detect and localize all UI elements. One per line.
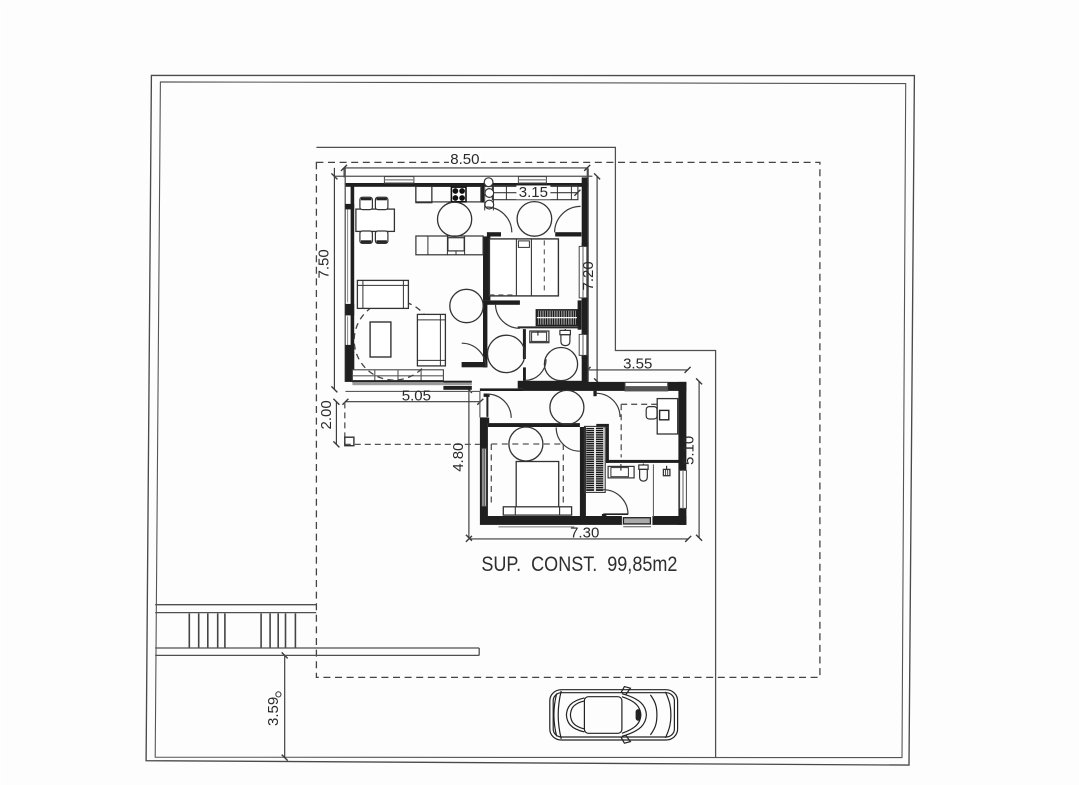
svg-text:7.50: 7.50 bbox=[315, 249, 332, 278]
svg-text:2.00: 2.00 bbox=[318, 400, 335, 429]
svg-text:5.10: 5.10 bbox=[680, 436, 697, 465]
svg-text:3.55: 3.55 bbox=[623, 356, 652, 373]
svg-text:8.50: 8.50 bbox=[450, 151, 479, 168]
svg-text:4.80: 4.80 bbox=[450, 443, 467, 472]
svg-text:7.30: 7.30 bbox=[570, 524, 599, 541]
svg-text:3.15: 3.15 bbox=[519, 184, 548, 201]
svg-text:SUP. CONST. 99,85m2: SUP. CONST. 99,85m2 bbox=[481, 552, 677, 576]
svg-text:7.20: 7.20 bbox=[580, 261, 597, 290]
svg-text:3.59: 3.59 bbox=[265, 697, 282, 726]
svg-text:5.05: 5.05 bbox=[402, 388, 431, 405]
